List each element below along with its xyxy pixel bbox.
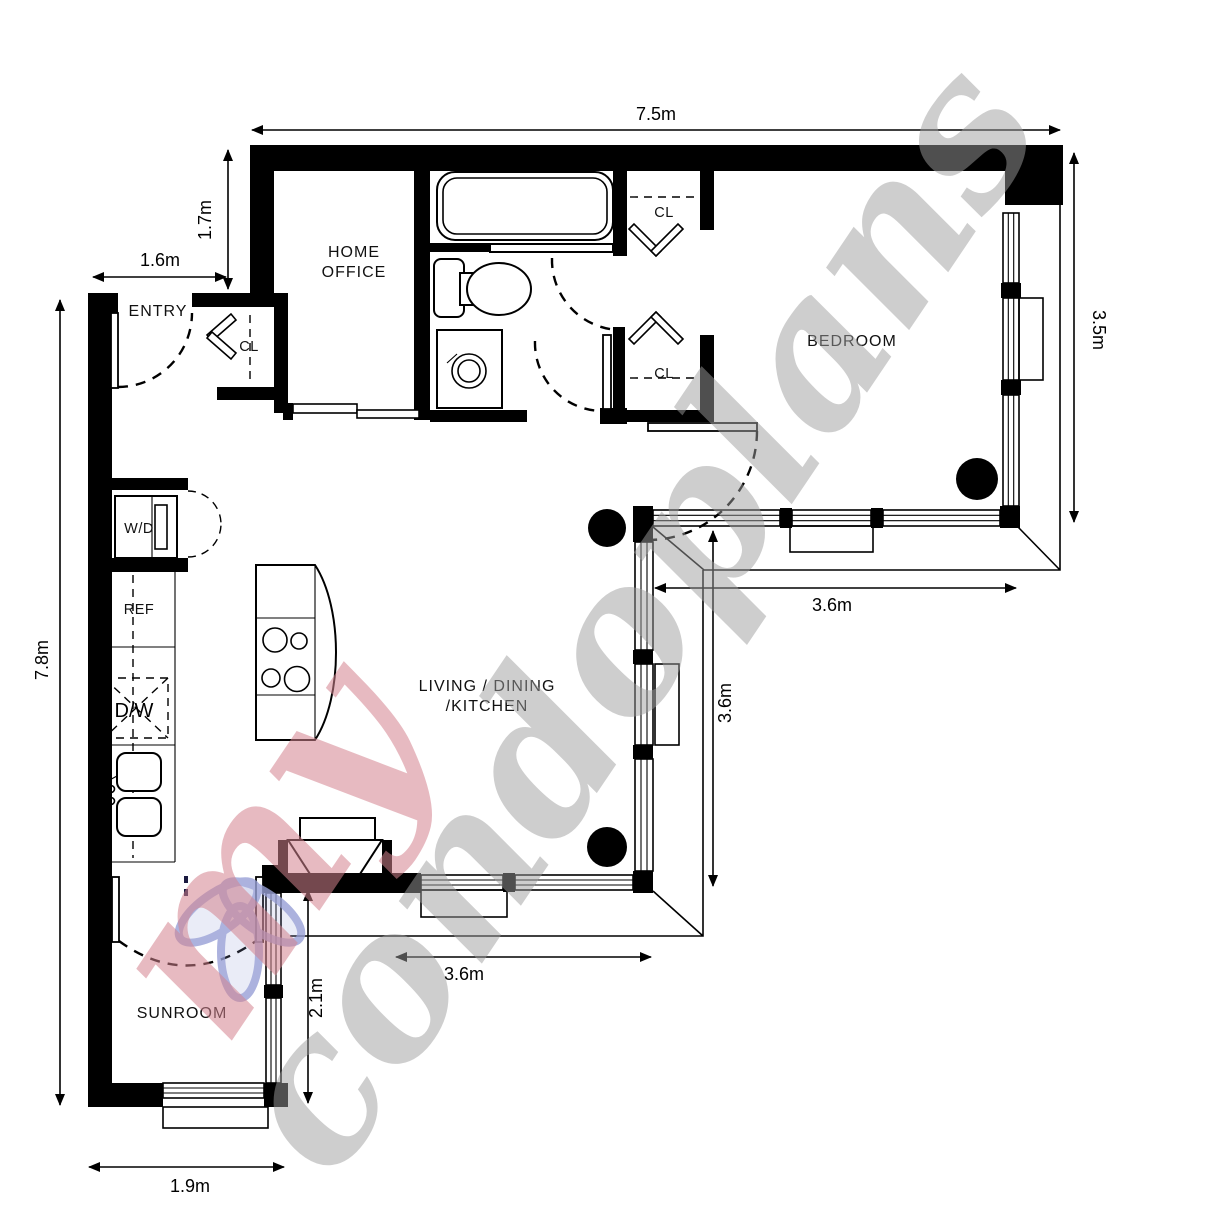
entry-door [111, 313, 192, 388]
bathroom-door [535, 258, 618, 411]
label-closet-entry: CL [239, 339, 259, 355]
office-interior-window [293, 404, 419, 418]
label-home-office-line2: OFFICE [322, 264, 387, 281]
washer-closet-doors [188, 491, 221, 557]
floor-plan-page: HOME OFFICE ENTRY BEDROOM LIVING / DININ… [0, 0, 1210, 1205]
label-refrigerator: REF [124, 602, 155, 618]
dimension-entry-width: 1.6m [93, 250, 226, 277]
label-washer-dryer: W/D [124, 521, 154, 537]
floor-plan-drawing: HOME OFFICE ENTRY BEDROOM LIVING / DININ… [0, 0, 1210, 1205]
dimension-bedroom-depth: 3.5m [1074, 153, 1109, 522]
label-entry: ENTRY [129, 303, 188, 320]
dimension-left-height: 7.8m [32, 300, 60, 1105]
label-dishwasher: D/W [115, 700, 154, 722]
svg-text:7.8m: 7.8m [32, 640, 52, 680]
column-bedroom [956, 458, 998, 500]
svg-text:7.5m: 7.5m [636, 104, 676, 124]
label-home-office-line1: HOME [328, 244, 380, 261]
svg-text:3.5m: 3.5m [1089, 310, 1109, 350]
svg-text:1.9m: 1.9m [170, 1176, 210, 1196]
dimension-sunroom-width: 1.9m [89, 1167, 284, 1196]
toilet [434, 259, 531, 317]
svg-text:3.6m: 3.6m [812, 595, 852, 615]
bathtub [437, 172, 613, 252]
bathroom-sink [437, 330, 502, 408]
svg-text:1.7m: 1.7m [195, 200, 215, 240]
dimension-office-depth: 1.7m [195, 150, 228, 289]
svg-text:1.6m: 1.6m [140, 250, 180, 270]
label-closet-top: CL [654, 205, 674, 221]
